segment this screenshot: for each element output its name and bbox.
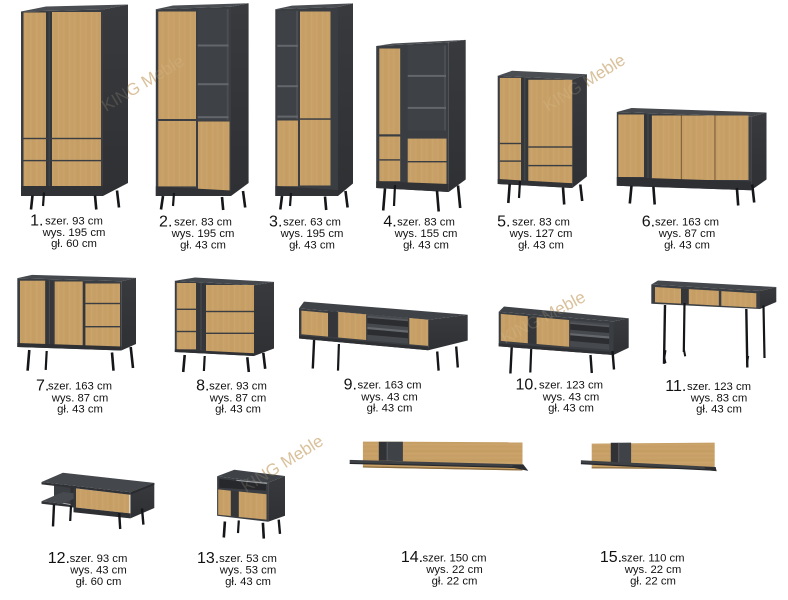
svg-text:gł. 22 cm: gł. 22 cm (630, 575, 676, 587)
svg-text:wys. 195 cm: wys. 195 cm (42, 227, 106, 239)
svg-text:szer. 110 cm: szer. 110 cm (621, 552, 684, 564)
svg-text:gł. 60 cm: gł. 60 cm (76, 576, 122, 588)
svg-text:gł. 43 cm: gł. 43 cm (548, 402, 594, 414)
svg-text:gł. 43 cm: gł. 43 cm (367, 403, 413, 415)
svg-text:szer. 163 cm: szer. 163 cm (357, 380, 421, 392)
svg-text:wys. 87 cm: wys. 87 cm (209, 392, 267, 404)
svg-text:2.: 2. (159, 213, 172, 230)
svg-text:szer. 53 cm: szer. 53 cm (219, 553, 277, 565)
svg-text:gł. 43 cm: gł. 43 cm (289, 239, 335, 251)
svg-text:8.: 8. (196, 378, 209, 395)
svg-text:gł. 22 cm: gł. 22 cm (432, 575, 478, 587)
svg-text:6.: 6. (642, 213, 655, 230)
svg-text:wys. 43 cm: wys. 43 cm (69, 565, 127, 577)
svg-text:szer. 93 cm: szer. 93 cm (45, 216, 103, 228)
svg-text:14.: 14. (401, 549, 423, 566)
svg-text:wys. 83 cm: wys. 83 cm (690, 392, 748, 404)
svg-text:10.: 10. (515, 377, 537, 394)
svg-text:wys. 22 cm: wys. 22 cm (425, 564, 483, 576)
svg-text:gł. 43 cm: gł. 43 cm (664, 239, 710, 251)
svg-text:szer. 93 cm: szer. 93 cm (70, 553, 128, 565)
svg-text:szer. 83 cm: szer. 83 cm (397, 217, 455, 229)
svg-text:gł. 43 cm: gł. 43 cm (57, 404, 103, 416)
svg-text:szer. 123 cm: szer. 123 cm (687, 381, 751, 393)
svg-text:5.: 5. (497, 213, 510, 230)
svg-text:12.: 12. (48, 550, 70, 567)
svg-text:szer. 93 cm: szer. 93 cm (209, 381, 267, 393)
svg-text:szer. 83 cm: szer. 83 cm (512, 217, 570, 229)
svg-text:wys. 22 cm: wys. 22 cm (624, 564, 682, 576)
svg-text:szer. 163 cm: szer. 163 cm (48, 381, 112, 393)
svg-text:szer. 123 cm: szer. 123 cm (539, 380, 603, 392)
svg-text:gł. 43 cm: gł. 43 cm (403, 239, 449, 251)
svg-text:gł. 43 cm: gł. 43 cm (215, 404, 261, 416)
svg-text:15.: 15. (600, 549, 622, 566)
svg-text:11.: 11. (665, 378, 686, 395)
svg-text:wys. 43 cm: wys. 43 cm (360, 391, 418, 403)
svg-text:9.: 9. (344, 377, 357, 394)
svg-text:gł. 60 cm: gł. 60 cm (51, 238, 97, 250)
svg-text:szer. 83 cm: szer. 83 cm (174, 217, 232, 229)
svg-text:gł. 43 cm: gł. 43 cm (225, 576, 271, 588)
svg-text:szer. 150 cm: szer. 150 cm (422, 552, 486, 564)
svg-text:szer. 163 cm: szer. 163 cm (655, 217, 719, 229)
svg-text:szer. 63 cm: szer. 63 cm (283, 217, 341, 229)
svg-text:1.: 1. (30, 212, 43, 229)
svg-text:gł. 43 cm: gł. 43 cm (180, 239, 226, 251)
svg-text:gł. 43 cm: gł. 43 cm (518, 239, 564, 251)
svg-text:wys. 87 cm: wys. 87 cm (51, 392, 109, 404)
svg-text:wys. 53 cm: wys. 53 cm (219, 565, 277, 577)
svg-text:gł. 43 cm: gł. 43 cm (696, 404, 742, 416)
svg-text:13.: 13. (197, 550, 219, 567)
